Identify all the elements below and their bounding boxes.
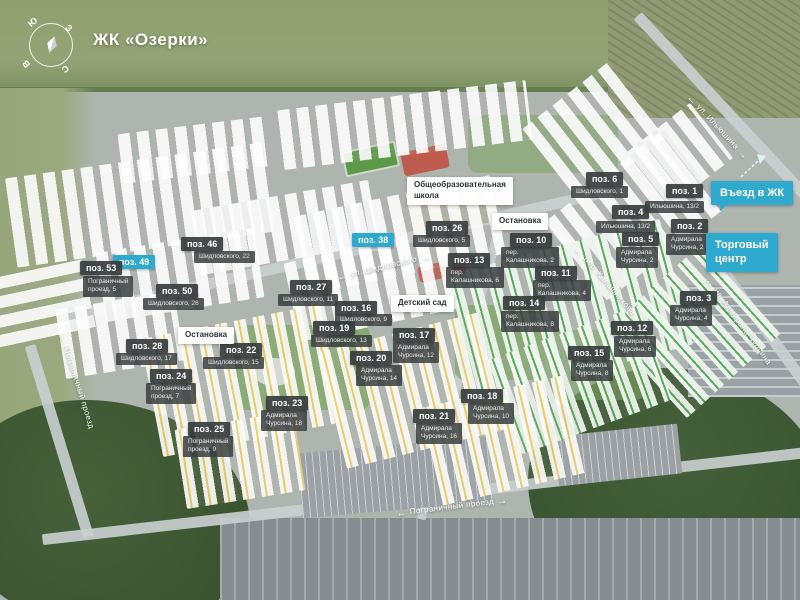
position-label-6[interactable]: поз. 6 [586,172,623,186]
address-label-2: Адмирала Чурсина, 2 [666,234,708,255]
address-label-53: Пограничный проезд, 5 [83,276,133,297]
address-label-24: Пограничный проезд, 7 [146,383,196,404]
position-label-1[interactable]: поз. 1 [666,184,703,198]
position-label-3[interactable]: поз. 3 [680,291,717,305]
address-label-21: Адмирала Чурсина, 16 [416,423,462,444]
address-label-20: Адмирала Чурсина, 14 [356,365,402,386]
position-label-46[interactable]: поз. 46 [181,237,223,251]
address-label-27: Шидловского, 11 [278,294,338,306]
position-label-4[interactable]: поз. 4 [612,205,649,219]
street-name: ул. Адмирала Чурсина [712,287,773,367]
position-label-53[interactable]: поз. 53 [80,261,122,275]
address-label-15: Адмирала Чурсина, 8 [571,360,613,381]
position-label-27[interactable]: поз. 27 [290,280,332,294]
position-label-2[interactable]: поз. 2 [671,219,708,233]
address-label-1: Ильюшина, 13/2 [645,201,704,213]
address-label-10: пер. Калашникова, 2 [501,247,559,268]
address-label-18: Адмирала Чурсина, 10 [468,403,514,424]
street-name: Пограничный проезд [63,346,96,430]
address-label-5: Адмирала Чурсина, 2 [616,247,658,268]
school-label: Общеобразовательная школа [407,177,513,205]
address-label-25: Пограничный проезд, 9 [183,436,233,457]
address-label-50: Шидловского, 26 [143,298,204,310]
position-label-25[interactable]: поз. 25 [188,422,230,436]
stop-north-label: Остановка [492,213,548,230]
masterplan-map: поз. 1Ильюшина, 13/2поз. 2Адмирала Чурси… [0,0,800,600]
address-label-28: Шидловского, 17 [116,353,177,365]
street-name: ул. Ильюшина [695,103,741,152]
compass-north-letter: С [59,63,71,75]
position-label-17[interactable]: поз. 17 [393,328,435,342]
position-label-28[interactable]: поз. 28 [126,339,168,353]
position-label-23[interactable]: поз. 23 [266,396,308,410]
position-label-19[interactable]: поз. 19 [313,321,355,335]
address-label-14: пер. Калашникова, 8 [501,311,559,332]
position-label-11[interactable]: поз. 11 [535,266,577,280]
compass-east-letter: В [20,58,32,70]
address-label-17: Адмирала Чурсина, 12 [393,342,439,363]
address-label-26: Шидловского, 5 [413,235,470,247]
map-labels-layer: поз. 1Ильюшина, 13/2поз. 2Адмирала Чурси… [0,0,800,600]
address-label-19: Шидловского, 13 [311,335,372,347]
address-label-3: Адмирала Чурсина, 4 [670,305,712,326]
position-label-21[interactable]: поз. 21 [413,409,455,423]
position-label-22[interactable]: поз. 22 [220,343,262,357]
compass-west-letter: З [63,22,74,33]
page-title: ЖК «Озерки» [93,30,208,50]
street-label-1: ←ул. Шидловского→ [323,248,444,286]
compass-icon: Ю З В С [22,16,80,74]
position-label-24[interactable]: поз. 24 [150,369,192,383]
street-arrow-icon: ← [393,507,411,520]
entrance-arrow-icon [737,152,769,180]
position-label-5[interactable]: поз. 5 [622,232,659,246]
mall-label: Торговый центр [706,233,778,272]
position-label-38[interactable]: поз. 38 [352,233,394,247]
address-label-22: Шидловского, 15 [203,357,264,369]
address-label-13: пер. Калашникова, 6 [446,267,504,288]
street-name: Пограничный проезд [409,497,494,516]
entrance-label: Въезд в ЖК [711,181,793,205]
street-arrow-icon: → [493,495,511,508]
position-label-15[interactable]: поз. 15 [568,346,610,360]
position-label-13[interactable]: поз. 13 [448,253,490,267]
position-label-14[interactable]: поз. 14 [503,296,545,310]
address-label-6: Шидловского, 1 [571,186,628,198]
address-label-12: Адмирала Чурсина, 6 [614,336,656,357]
position-label-20[interactable]: поз. 20 [350,351,392,365]
street-label-5: ←Пограничный проезд→ [371,492,533,523]
address-label-23: Адмирала Чурсина, 18 [261,410,307,431]
address-label-46: Шидловского, 22 [194,251,255,263]
position-label-50[interactable]: поз. 50 [156,284,198,298]
position-label-12[interactable]: поз. 12 [611,321,653,335]
street-arrow-icon: → [416,251,434,265]
kindergarten-label: Детский сад [391,295,454,312]
street-name: ул. Шидловского [350,254,418,278]
position-label-18[interactable]: поз. 18 [461,389,503,403]
position-label-10[interactable]: поз. 10 [510,233,552,247]
stop-west-label: Остановка [178,327,234,344]
street-label-4: ←Пограничный проезд [52,317,101,445]
position-label-16[interactable]: поз. 16 [335,301,377,315]
position-label-26[interactable]: поз. 26 [426,221,468,235]
